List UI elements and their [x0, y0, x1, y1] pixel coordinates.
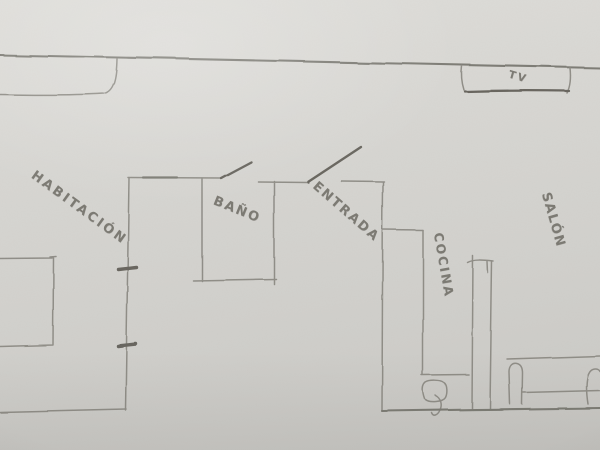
floorplan-photo: HABITACIÓN BAÑO ENTRADA COCINA SALÓN TV: [0, 0, 600, 450]
